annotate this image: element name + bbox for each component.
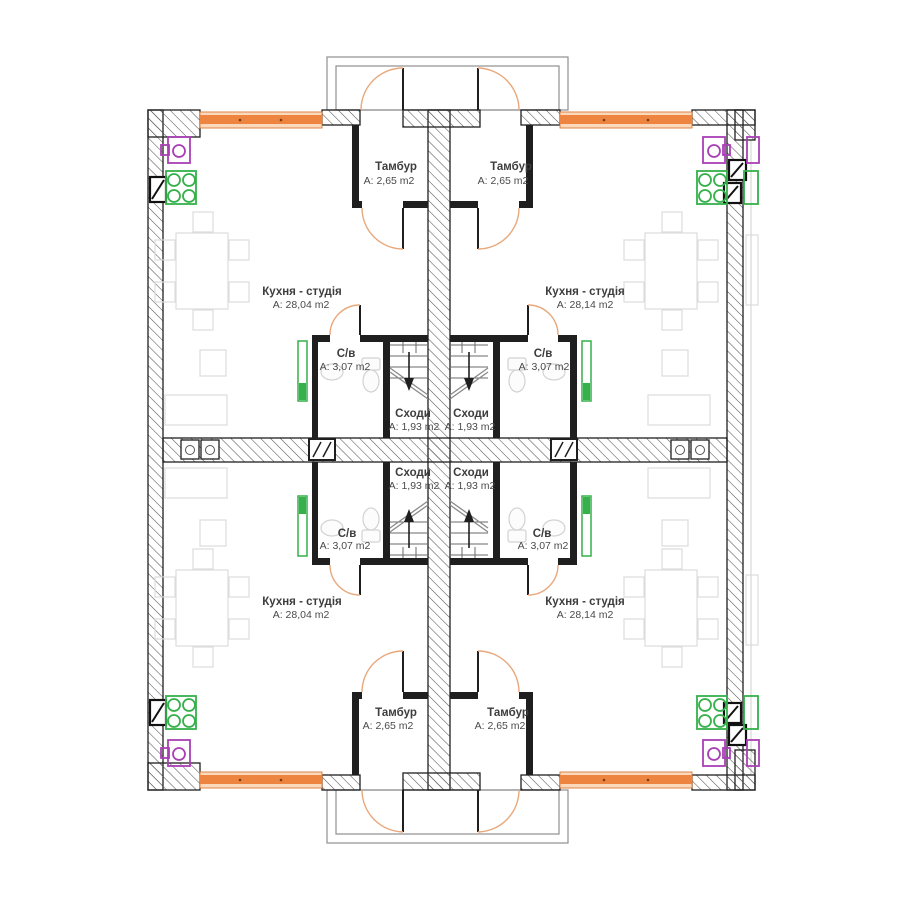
room-label: Сходи — [395, 467, 431, 479]
window-band-bottom-right — [560, 772, 692, 788]
room-label: Сходи — [453, 467, 489, 479]
room-area: А: 1,93 m2 — [389, 421, 440, 433]
sink-icon — [161, 137, 190, 163]
stairs-bottom-right — [450, 501, 488, 558]
radiator-icon — [582, 496, 591, 556]
room-label: Кухня - студія — [262, 596, 341, 608]
room-label: Тамбур — [375, 161, 417, 173]
sink-icon — [703, 740, 730, 766]
room-area: А: 3,07 m2 — [320, 540, 371, 552]
radiator-icon — [582, 341, 591, 401]
radiator-icon — [298, 496, 307, 556]
furniture-bottom-left — [155, 468, 249, 667]
stove-icon — [697, 696, 727, 729]
room-area: А: 2,65 m2 — [475, 720, 526, 732]
room-label: Сходи — [395, 408, 431, 420]
room-label: С/в — [534, 348, 553, 360]
toilet-icon — [508, 508, 526, 542]
floor-plan-canvas: Тамбур А: 2,65 m2 Тамбур А: 2,65 m2 Кухн… — [0, 0, 900, 900]
vent-shaft-right-icon — [551, 439, 577, 460]
room-area: А: 1,93 m2 — [389, 480, 440, 492]
window-icon — [150, 700, 166, 725]
room-area: А: 3,07 m2 — [320, 361, 371, 373]
furniture-bottom-right — [624, 468, 718, 667]
stairs-top-left — [390, 342, 428, 399]
sink-icon — [703, 137, 730, 163]
room-area: А: 3,07 m2 — [519, 361, 570, 373]
room-area: А: 2,65 m2 — [478, 175, 529, 187]
window-band-top-left — [200, 112, 322, 128]
vent-shaft-left-icon — [309, 439, 335, 460]
window-band-bottom-left — [200, 772, 322, 788]
room-area: А: 28,04 m2 — [273, 299, 330, 311]
adjacent-unit-edge — [746, 140, 758, 775]
room-area: А: 28,14 m2 — [557, 299, 614, 311]
stove-icon — [166, 696, 196, 729]
room-label: Кухня - студія — [545, 286, 624, 298]
room-area: А: 3,07 m2 — [518, 540, 569, 552]
top-porch — [327, 57, 568, 110]
room-area: А: 2,65 m2 — [363, 720, 414, 732]
room-label: Тамбур — [487, 707, 529, 719]
furniture-top-left — [155, 212, 249, 425]
room-label: С/в — [533, 528, 552, 540]
room-label: Кухня - студія — [262, 286, 341, 298]
room-area: А: 1,93 m2 — [445, 421, 496, 433]
stairs-bottom-left — [390, 501, 428, 558]
toilet-icon — [362, 508, 380, 542]
window-icon — [150, 177, 166, 202]
room-label: Тамбур — [490, 161, 532, 173]
room-label: Кухня - студія — [545, 596, 624, 608]
stove-icon — [697, 171, 727, 204]
furniture-top-right — [624, 212, 718, 425]
room-area: А: 1,93 m2 — [445, 480, 496, 492]
floor-plan-drawing: Тамбур А: 2,65 m2 Тамбур А: 2,65 m2 Кухн… — [0, 0, 900, 900]
stove-icon — [166, 171, 196, 204]
room-area: А: 2,65 m2 — [364, 175, 415, 187]
room-area: А: 28,14 m2 — [557, 609, 614, 621]
window-band-top-right — [560, 112, 692, 128]
room-label: С/в — [338, 528, 357, 540]
stairs-top-right — [450, 342, 488, 399]
room-area: А: 28,04 m2 — [273, 609, 330, 621]
room-label: Сходи — [453, 408, 489, 420]
sink-icon — [161, 740, 190, 766]
radiator-icon — [298, 341, 307, 401]
room-label: Тамбур — [375, 707, 417, 719]
room-label: С/в — [337, 348, 356, 360]
